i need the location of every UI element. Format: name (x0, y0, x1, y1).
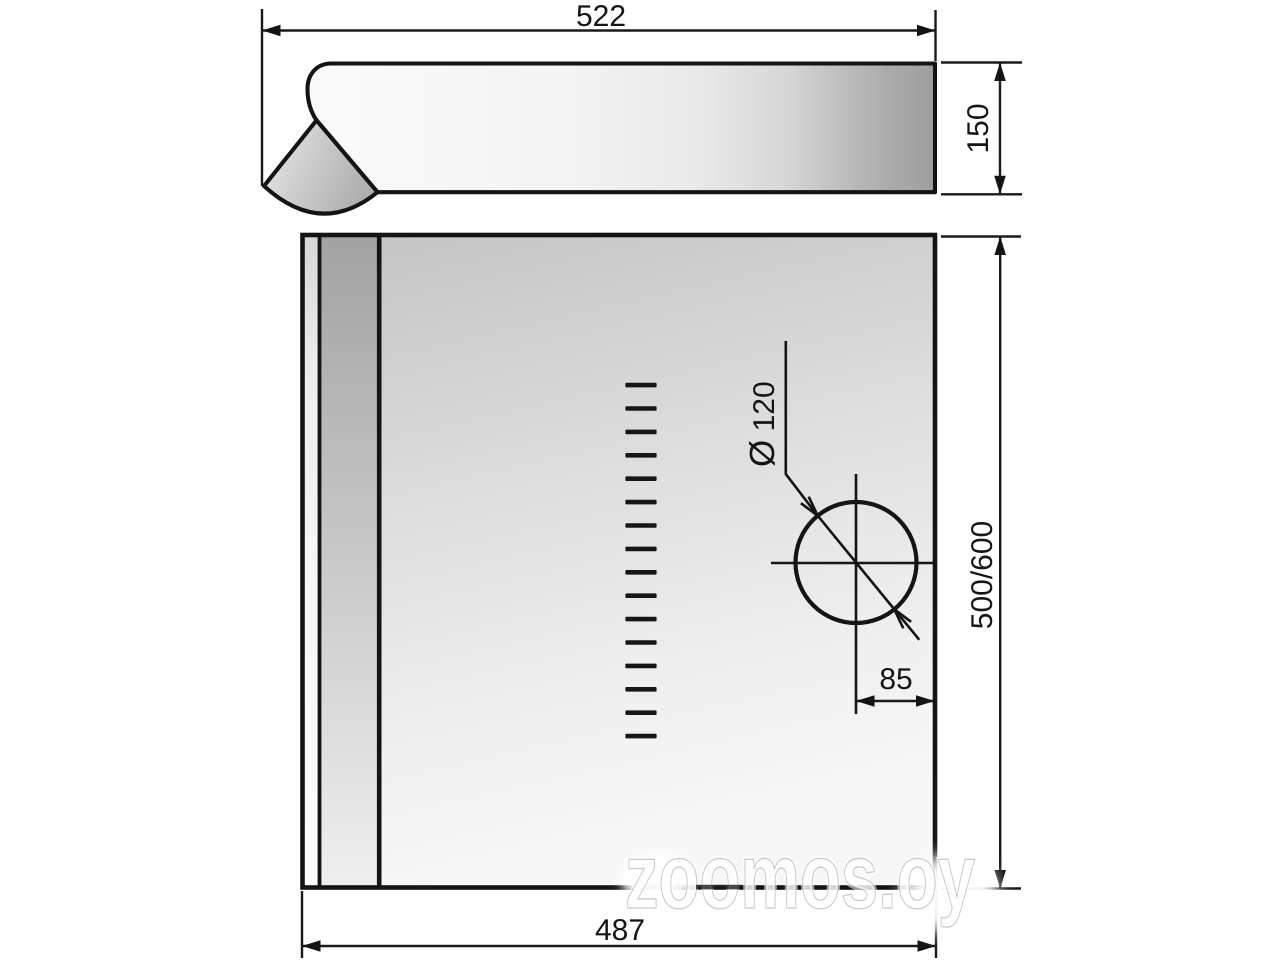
svg-text:522: 522 (576, 0, 626, 33)
svg-text:Ø 120: Ø 120 (743, 381, 782, 467)
svg-text:500/600: 500/600 (966, 521, 999, 629)
svg-text:85: 85 (879, 663, 912, 696)
svg-text:zoomos.oy: zoomos.oy (625, 826, 975, 928)
svg-text:150: 150 (962, 103, 995, 153)
